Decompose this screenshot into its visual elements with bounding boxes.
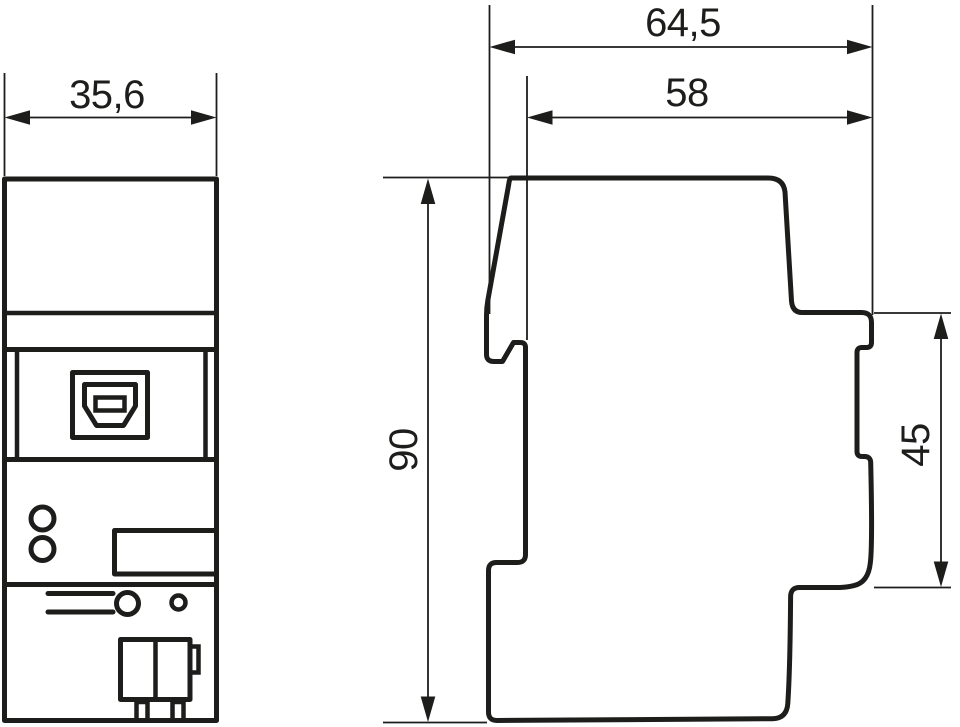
drawing-canvas: 35,6: [0, 0, 960, 727]
dim-label-height: 90: [382, 428, 426, 472]
dim-label-total-depth: 64,5: [645, 1, 721, 45]
arrowhead-left: [490, 40, 516, 55]
dim-label-body-depth: 58: [665, 71, 709, 115]
arrowhead-left: [527, 110, 553, 125]
dim-din-section-height: 45: [874, 313, 951, 588]
arrowhead-down: [421, 697, 436, 723]
arrowhead-up: [934, 314, 949, 340]
arrowhead-down: [934, 562, 949, 588]
dim-label-front-width: 35,6: [69, 73, 145, 117]
arrowhead-right: [847, 40, 873, 55]
arrowhead-right: [847, 110, 873, 125]
front-view: 35,6: [5, 73, 217, 721]
arrowhead-left: [5, 110, 31, 125]
dim-label-din-section-height: 45: [894, 423, 938, 467]
side-view: 64,5 58 90: [382, 1, 951, 723]
drawing-page: 35,6: [0, 0, 960, 727]
dim-front-width: 35,6: [5, 73, 217, 176]
arrowhead-right: [191, 110, 217, 125]
side-outline: [487, 178, 872, 721]
arrowhead-up: [421, 179, 436, 205]
